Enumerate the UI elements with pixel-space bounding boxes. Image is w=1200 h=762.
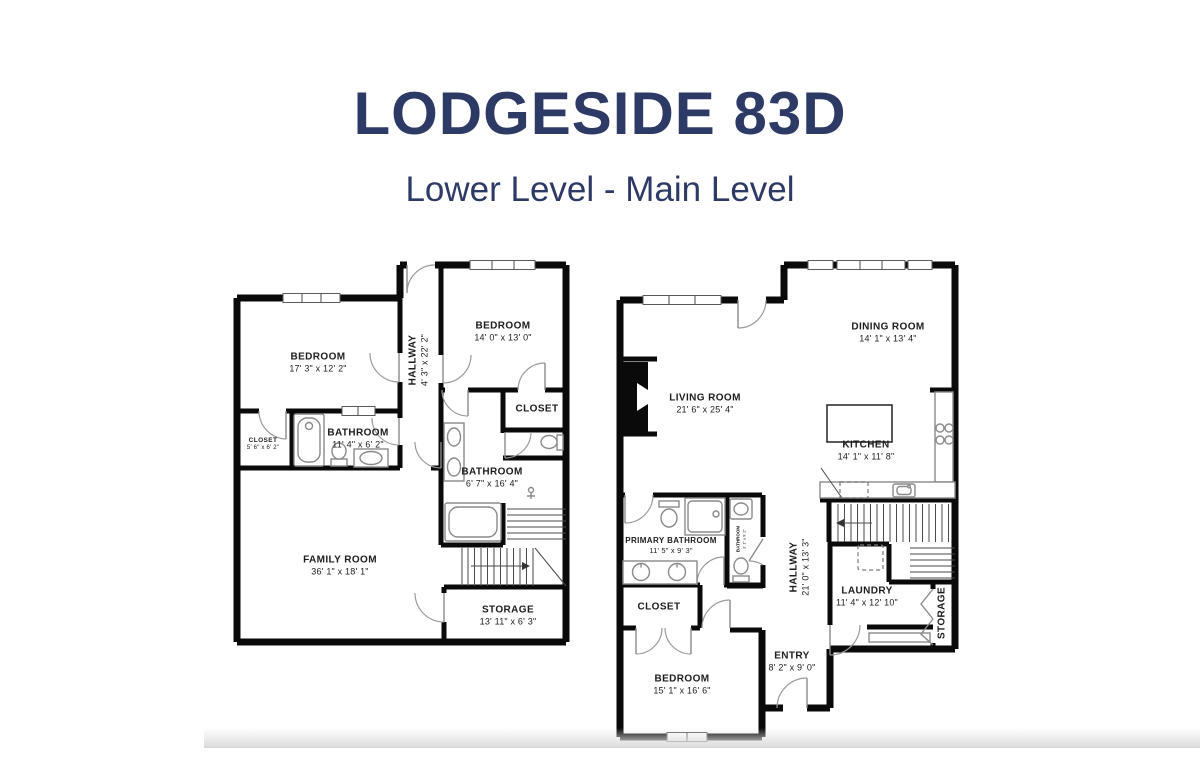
room-dims: 8' 2" x 9' 0"	[769, 663, 816, 675]
room-label: DINING ROOM	[851, 321, 924, 334]
room-label: CLOSET	[516, 403, 559, 416]
room-dims: 6' 7" x 16' 4"	[461, 479, 522, 491]
room-dims: 11' 4" x 6' 2"	[327, 440, 388, 452]
floor-plan-page: LODGESIDE 83D Lower Level - Main Level	[0, 0, 1200, 762]
kitchen-sink-icon	[893, 484, 915, 497]
room-dims: 14' 0" x 13' 0"	[474, 333, 531, 345]
room-label: LAUNDRY	[836, 585, 898, 598]
page-title: LODGESIDE 83D	[0, 84, 1200, 144]
room-dims: 17' 3" x 12' 2"	[289, 364, 346, 376]
shower-icon	[685, 498, 725, 535]
room-label: BATHROOM	[327, 427, 388, 440]
lower-level-plan: BEDROOM 17' 3" x 12' 2" BEDROOM 14' 0" x…	[228, 256, 574, 648]
room-dining: DINING ROOM 14' 1" x 13' 4"	[851, 321, 924, 346]
page-bottom-shadow	[204, 728, 1200, 748]
lower-level-floorplan-drawing	[228, 256, 574, 648]
washer-icon	[858, 545, 883, 570]
room-family-room: FAMILY ROOM 36' 1" x 18' 1"	[303, 554, 377, 579]
toilet-icon	[733, 558, 749, 582]
kitchen-island-icon	[827, 405, 892, 442]
room-label: HALLWAY	[788, 538, 801, 595]
bathtub-icon	[294, 414, 324, 466]
toilet-icon	[659, 501, 679, 527]
room-bathroom-2: BATHROOM 6' 7" x 16' 4"	[461, 466, 522, 491]
room-dims: 11' 4" x 12' 10"	[836, 598, 898, 610]
double-vanity-icon	[623, 561, 697, 584]
room-dims: 15' 1" x 16' 6"	[653, 686, 710, 698]
main-level-plan: DINING ROOM 14' 1" x 13' 4" LIVING ROOM …	[612, 255, 960, 753]
room-dims: 3' 1" x 9' 2"	[741, 526, 746, 552]
room-label: LIVING ROOM	[669, 392, 741, 405]
room-entry: ENTRY 8' 2" x 9' 0"	[769, 650, 816, 675]
room-dims: 21' 6" x 25' 4"	[669, 405, 741, 417]
room-label: BEDROOM	[653, 673, 710, 686]
header: LODGESIDE 83D Lower Level - Main Level	[0, 0, 1200, 207]
room-bedroom-1: BEDROOM 17' 3" x 12' 2"	[289, 351, 346, 376]
sink-icon	[354, 449, 388, 467]
room-label: CLOSET	[638, 601, 681, 614]
room-dims: 36' 1" x 18' 1"	[303, 567, 377, 579]
room-dims: 13' 11" x 6' 3"	[480, 617, 537, 629]
room-label: KITCHEN	[838, 439, 895, 452]
room-dims: 21' 0" x 13' 3"	[801, 538, 813, 595]
room-dims: 11' 5" x 9' 3"	[625, 546, 717, 556]
room-living: LIVING ROOM 21' 6" x 25' 4"	[669, 392, 741, 417]
room-primary-bathroom: PRIMARY BATHROOM 11' 5" x 9' 3"	[625, 536, 717, 556]
room-dims: 14' 1" x 11' 8"	[838, 452, 895, 464]
room-kitchen: KITCHEN 14' 1" x 11' 8"	[838, 439, 895, 464]
stairs-icon	[836, 504, 955, 578]
room-dims: 14' 1" x 13' 4"	[851, 334, 924, 346]
room-storage: STORAGE	[936, 587, 949, 639]
room-label: STORAGE	[936, 587, 949, 639]
room-dims: 4' 3" x 22' 2"	[420, 334, 432, 386]
room-closet-2: CLOSET	[516, 403, 559, 416]
room-bathroom-1: BATHROOM 11' 4" x 6' 2"	[327, 427, 388, 452]
room-laundry: LAUNDRY 11' 4" x 12' 10"	[836, 585, 898, 610]
room-closet-1: CLOSET 5' 6" x 6' 2"	[247, 437, 279, 453]
page-subtitle: Lower Level - Main Level	[0, 172, 1200, 207]
room-hallway: HALLWAY 4' 3" x 22' 2"	[407, 334, 432, 386]
fireplace-icon	[620, 359, 657, 434]
room-label: HALLWAY	[407, 334, 420, 386]
room-label: ENTRY	[769, 650, 816, 663]
room-label: BEDROOM	[289, 351, 346, 364]
room-label: CLOSET	[247, 437, 279, 445]
shower-head-icon	[527, 488, 535, 500]
room-dims: 5' 6" x 6' 2"	[247, 445, 279, 453]
room-hallway: HALLWAY 21' 0" x 13' 3"	[788, 538, 813, 595]
room-bedroom: BEDROOM 15' 1" x 16' 6"	[653, 673, 710, 698]
room-label: BATHROOM	[461, 466, 522, 479]
room-label: STORAGE	[480, 604, 537, 617]
room-label: PRIMARY BATHROOM	[625, 536, 717, 546]
bathtub-icon	[445, 503, 501, 541]
sink-icon	[730, 499, 752, 519]
room-bedroom-2: BEDROOM 14' 0" x 13' 0"	[474, 320, 531, 345]
room-closet: CLOSET	[638, 601, 681, 614]
room-storage: STORAGE 13' 11" x 6' 3"	[480, 604, 537, 629]
room-label: BEDROOM	[474, 320, 531, 333]
room-label: BATHROOM	[735, 526, 741, 552]
room-label: FAMILY ROOM	[303, 554, 377, 567]
room-small-bathroom: BATHROOM 3' 1" x 9' 2"	[735, 526, 746, 552]
toilet-icon	[541, 435, 563, 450]
